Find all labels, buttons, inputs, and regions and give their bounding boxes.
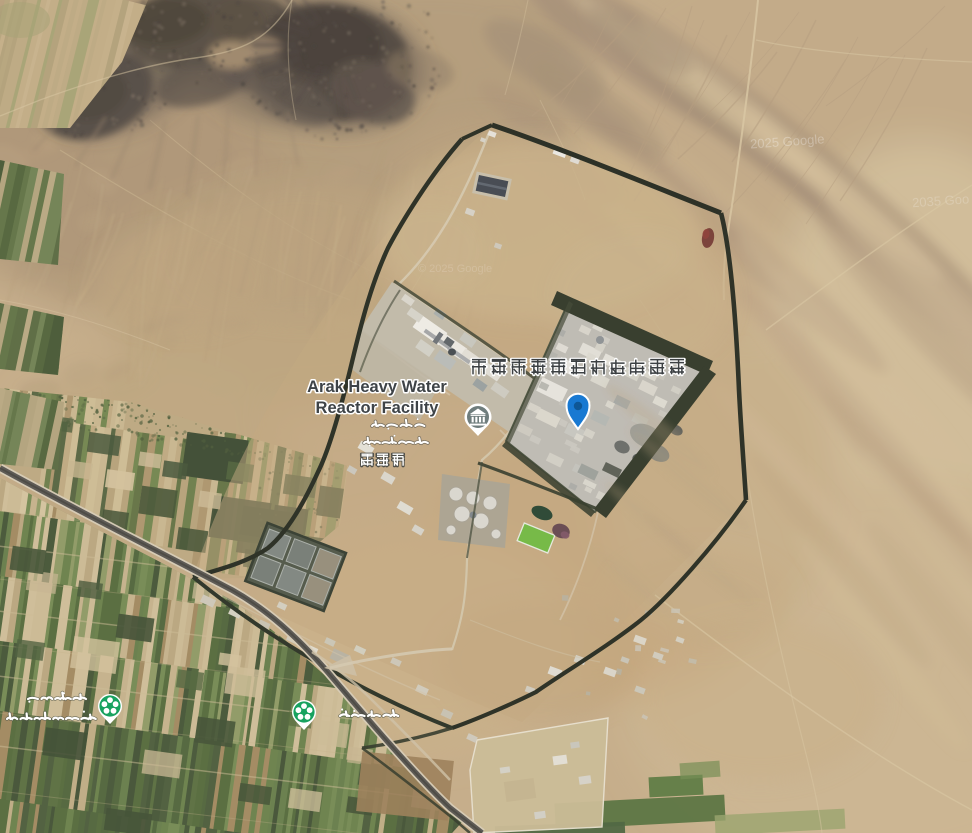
svg-text:Arak Heavy Water: Arak Heavy Water — [307, 378, 447, 396]
svg-text:© 2025 Google: © 2025 Google — [418, 263, 492, 275]
svg-text:Reactor Facility: Reactor Facility — [316, 399, 440, 417]
